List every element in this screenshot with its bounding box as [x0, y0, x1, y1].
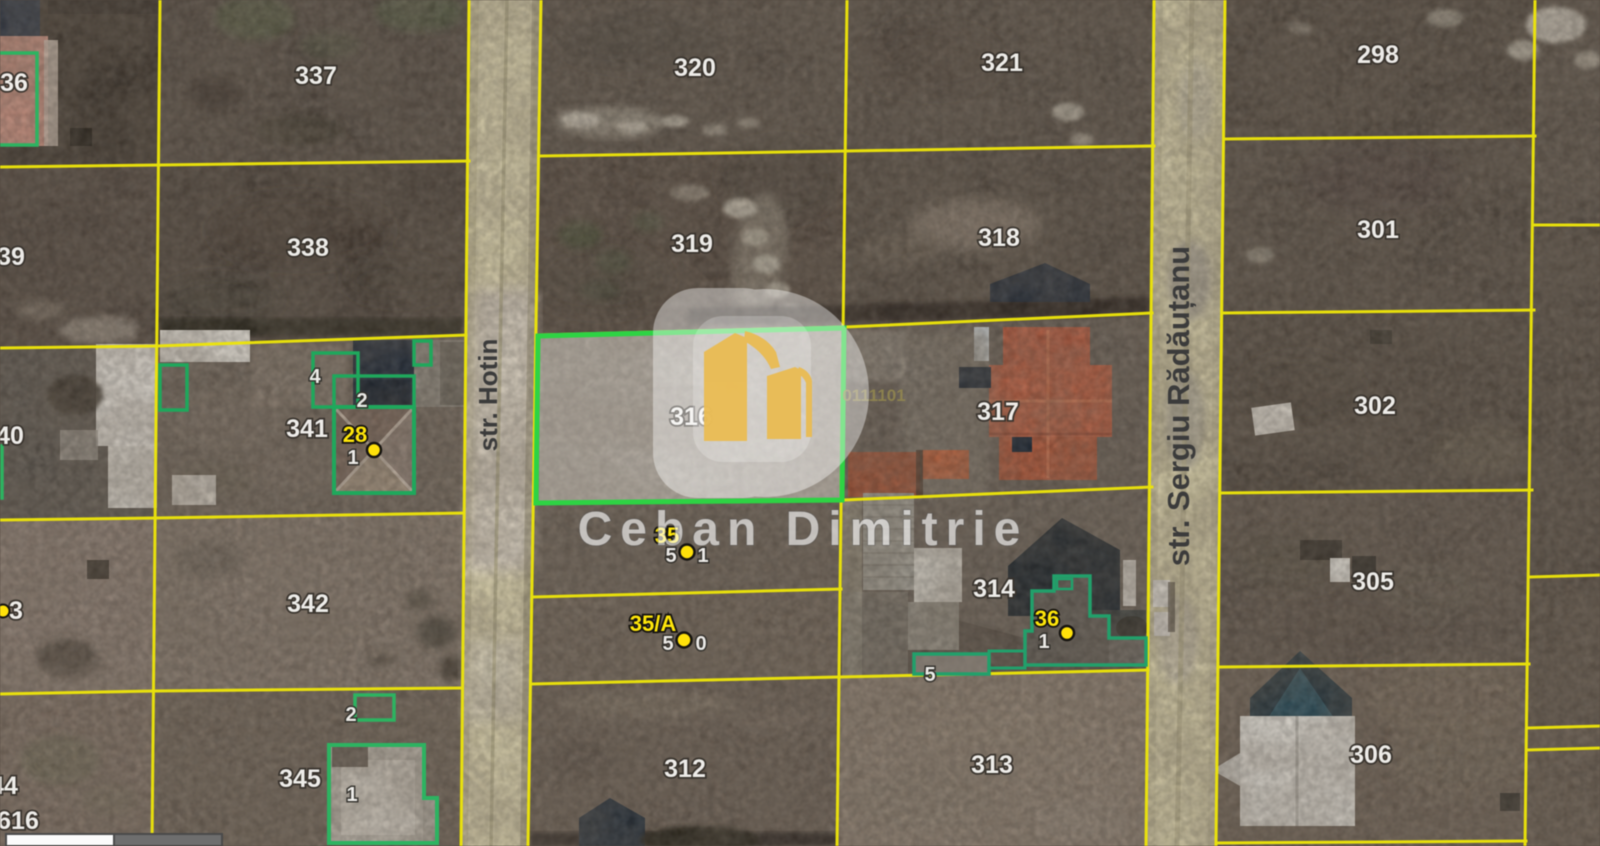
svg-text:305: 305	[1352, 568, 1394, 596]
svg-text:337: 337	[295, 62, 337, 90]
svg-text:str. Hotin: str. Hotin	[473, 339, 503, 452]
svg-text:306: 306	[1350, 741, 1392, 769]
svg-text:301: 301	[1357, 216, 1399, 244]
svg-text:2: 2	[356, 390, 367, 412]
svg-text:44: 44	[0, 772, 18, 800]
svg-text:1: 1	[346, 784, 357, 806]
svg-text:str. Sergiu Rădăuțanu: str. Sergiu Rădăuțanu	[1161, 246, 1196, 566]
svg-text:312: 312	[664, 755, 706, 783]
svg-text:338: 338	[287, 234, 329, 262]
svg-text:5: 5	[924, 664, 935, 686]
svg-text:320: 320	[674, 54, 716, 82]
svg-text:318: 318	[978, 224, 1020, 252]
svg-text:1: 1	[1038, 631, 1049, 653]
svg-text:1: 1	[347, 447, 358, 469]
svg-text:314: 314	[973, 575, 1015, 603]
svg-text:36: 36	[1035, 606, 1059, 631]
svg-text:Ceban Dimitrie: Ceban Dimitrie	[578, 503, 1029, 556]
svg-text:317: 317	[977, 398, 1019, 426]
svg-text:5: 5	[662, 633, 673, 655]
svg-text:28: 28	[343, 422, 367, 447]
svg-text:302: 302	[1354, 392, 1396, 420]
svg-text:36: 36	[0, 69, 28, 97]
svg-text:2: 2	[345, 704, 356, 726]
svg-text:319: 319	[671, 230, 713, 258]
svg-text:342: 342	[287, 590, 329, 618]
svg-text:3: 3	[9, 597, 23, 625]
svg-text:616: 616	[0, 807, 39, 835]
svg-text:321: 321	[981, 49, 1023, 77]
svg-text:298: 298	[1357, 41, 1399, 69]
svg-text:40: 40	[0, 422, 24, 450]
svg-text:313: 313	[971, 751, 1013, 779]
svg-text:341: 341	[286, 415, 328, 443]
svg-text:345: 345	[279, 765, 321, 793]
svg-text:39: 39	[0, 243, 25, 271]
svg-text:4: 4	[309, 366, 321, 388]
svg-text:0: 0	[695, 633, 706, 655]
